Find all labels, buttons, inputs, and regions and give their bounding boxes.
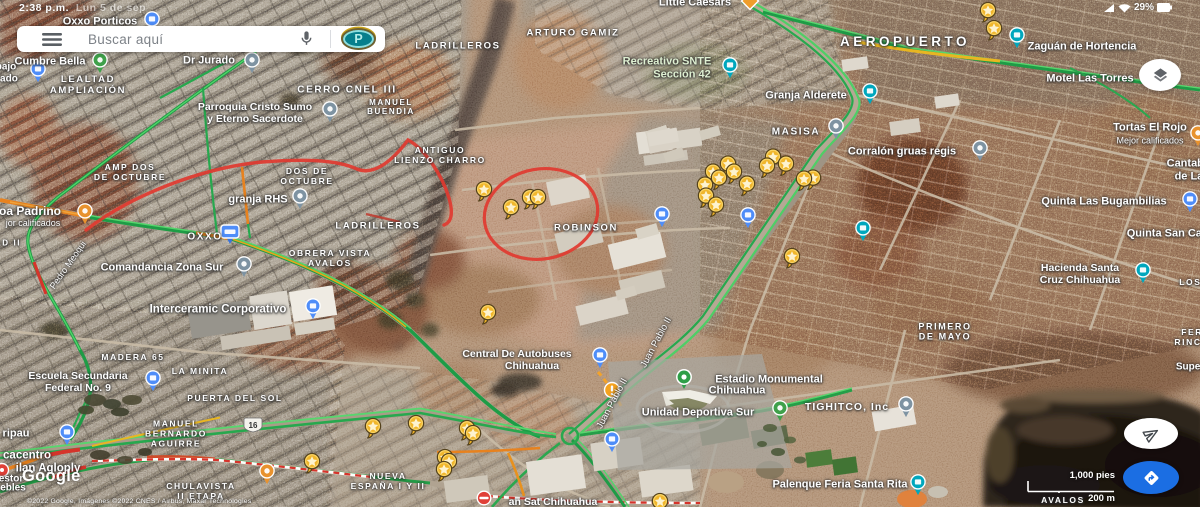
svg-text:16: 16	[249, 421, 258, 430]
